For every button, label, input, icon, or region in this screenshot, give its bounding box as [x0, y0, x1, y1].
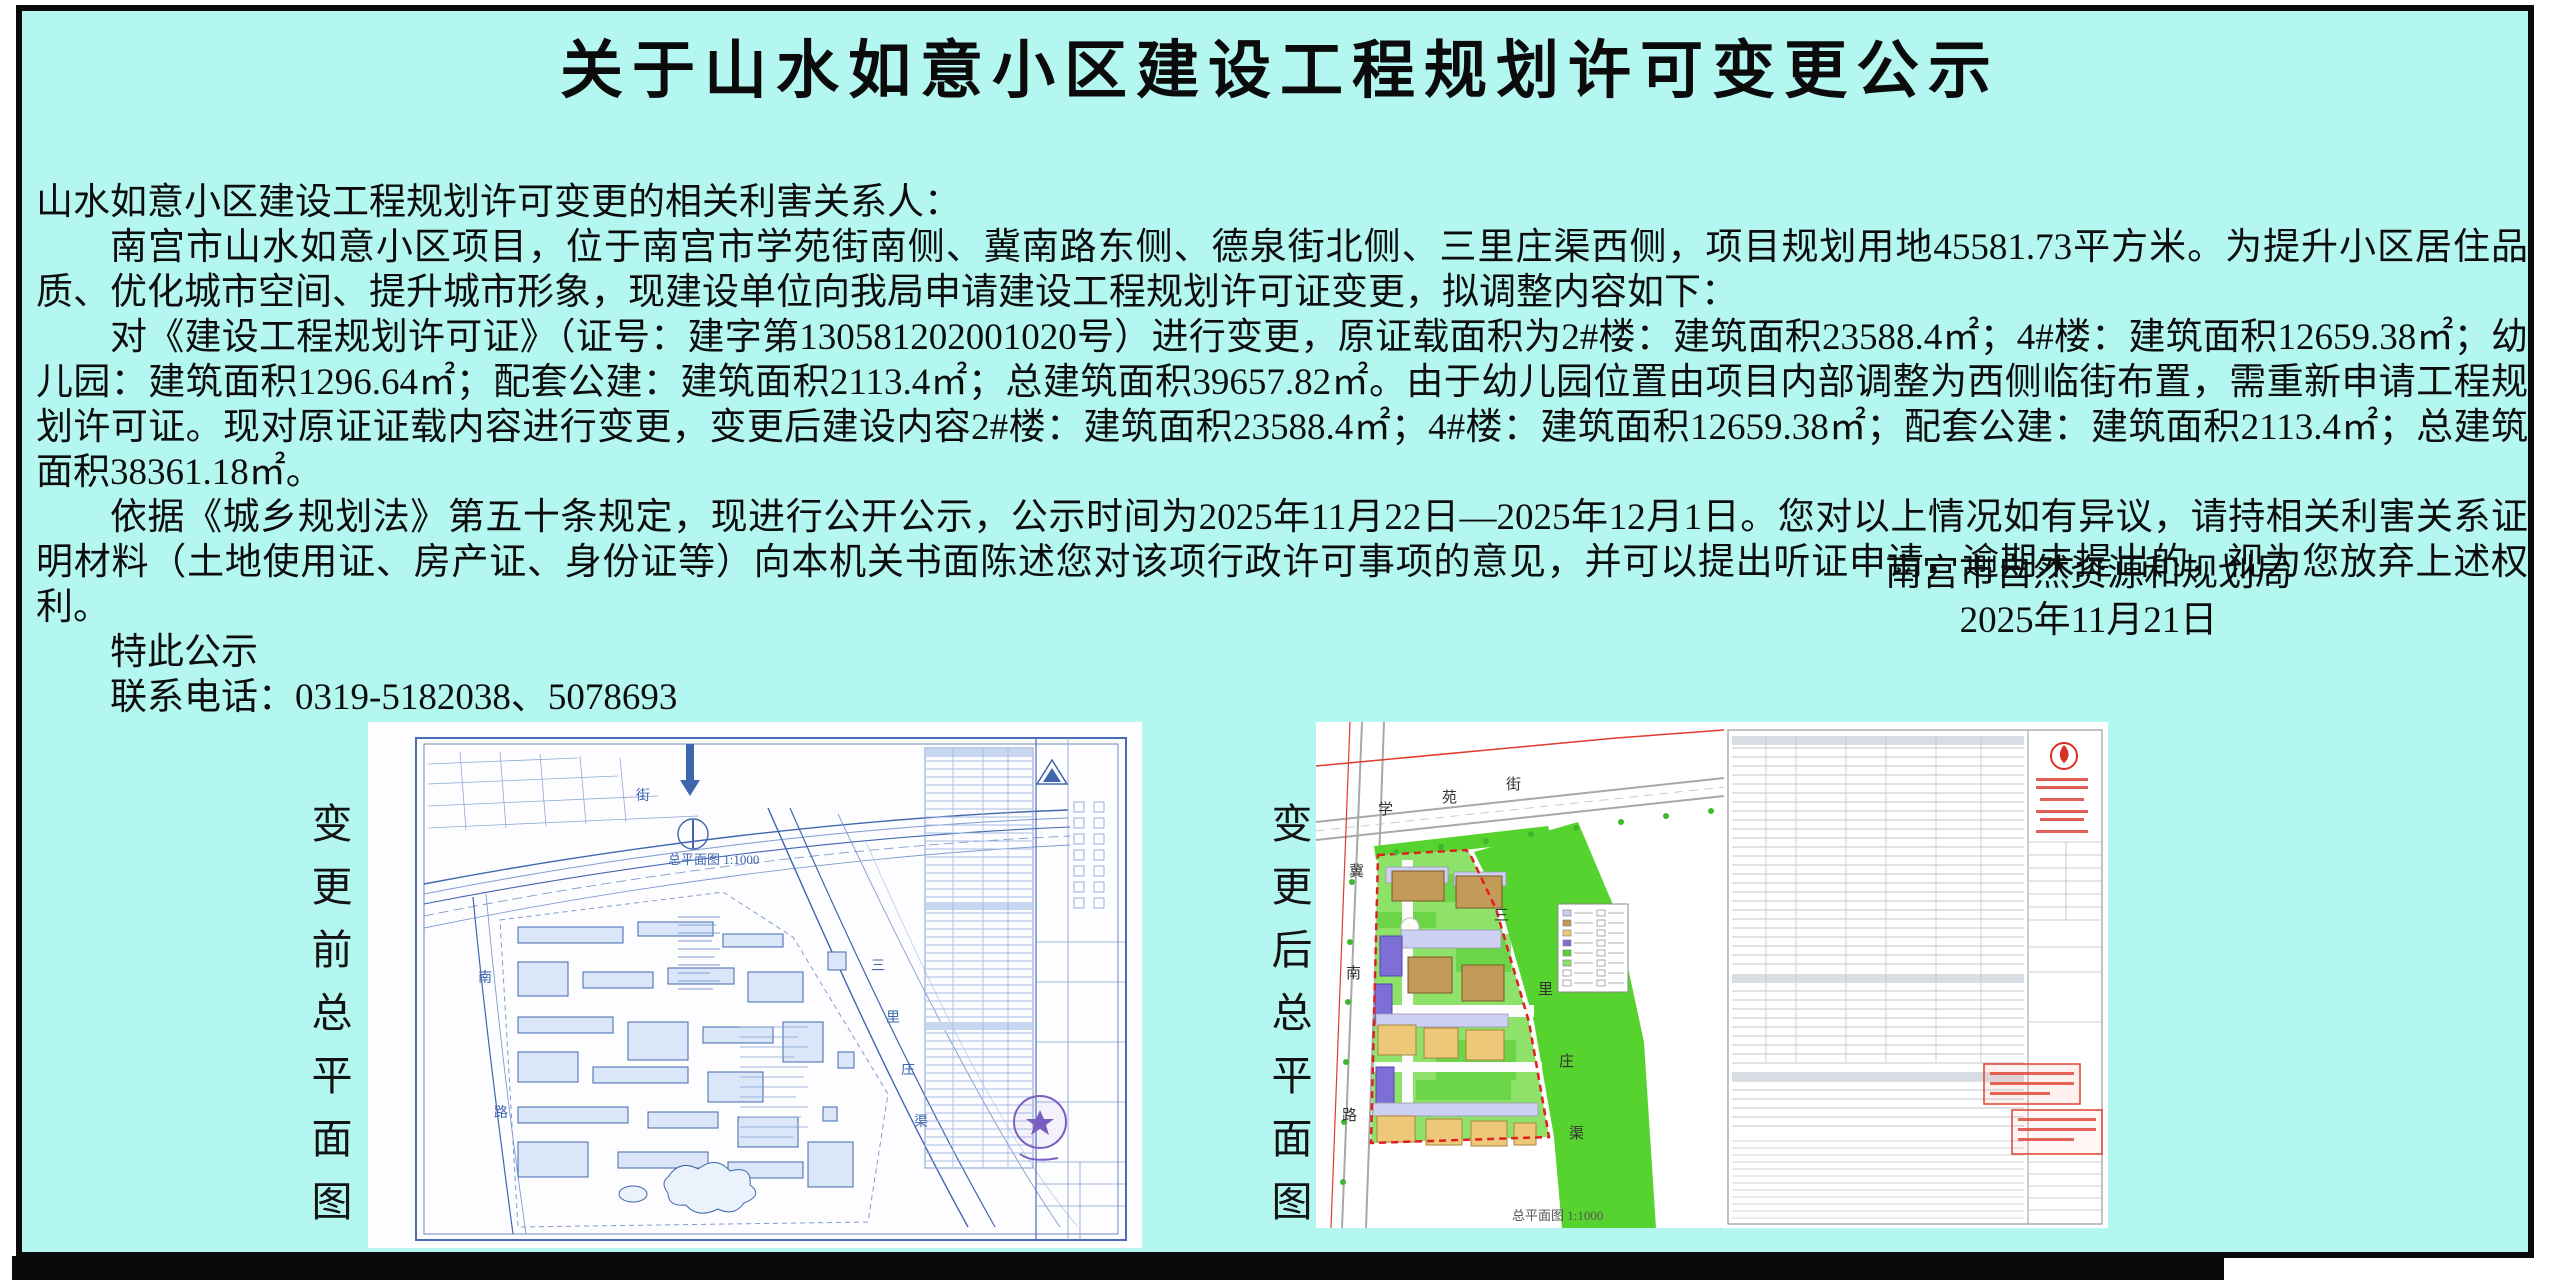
paragraph-project: 南宫市山水如意小区项目，位于南宫市学苑街南侧、冀南路东侧、德泉街北侧、三里庄渠西… — [36, 225, 2528, 315]
signature-block: 南宫市自然资源和规划局 2025年11月21日 — [1885, 550, 2292, 644]
contact-line: 联系电话：0319-5182038、5078693 — [36, 675, 2528, 720]
svg-text:渠: 渠 — [914, 1114, 928, 1130]
site-plan-after-image: 学 苑 街 冀 南 路 三 里 庄 渠 总平面图 1:1000 — [1316, 722, 2108, 1228]
svg-text:学: 学 — [1378, 801, 1393, 818]
blueprint-drawing: 街 南 路 三 里 庄 渠 总平面图 1:1000 — [368, 722, 1142, 1248]
svg-text:南: 南 — [478, 970, 492, 986]
scale-label: 总平面图 1:1000 — [1512, 1208, 1603, 1223]
svg-text:路: 路 — [494, 1105, 508, 1121]
legend-box — [1558, 904, 1628, 992]
issue-date: 2025年11月21日 — [1885, 597, 2292, 644]
svg-text:街: 街 — [636, 788, 650, 804]
svg-text:里: 里 — [886, 1011, 900, 1026]
svg-text:渠: 渠 — [1569, 1125, 1584, 1142]
svg-text:路: 路 — [1342, 1107, 1357, 1124]
site-plan-before-image: 街 南 路 三 里 庄 渠 总平面图 1:1000 — [368, 722, 1142, 1248]
paragraph-permit-change: 对《建设工程规划许可证》（证号：建字第130581202001020号）进行变更… — [36, 315, 2528, 495]
salutation: 山水如意小区建设工程规划许可变更的相关利害关系人： — [36, 180, 2528, 225]
data-table — [925, 748, 1033, 1168]
svg-text:庄: 庄 — [901, 1061, 915, 1078]
svg-text:庄: 庄 — [1559, 1052, 1574, 1070]
bottom-frame-bar — [12, 1256, 2224, 1280]
data-sheet — [1728, 730, 2102, 1224]
svg-text:三: 三 — [1494, 908, 1509, 924]
caption-before-plan: 变更前总平面图 — [298, 802, 358, 1243]
svg-text:南: 南 — [1346, 965, 1361, 982]
svg-text:三: 三 — [871, 959, 885, 974]
page-title: 关于山水如意小区建设工程规划许可变更公示 — [0, 20, 2560, 111]
scale-label: 总平面图 1:1000 — [668, 852, 759, 867]
svg-text:苑: 苑 — [1442, 789, 1457, 806]
caption-after-plan: 变更后总平面图 — [1258, 802, 1318, 1243]
svg-text:冀: 冀 — [1349, 863, 1364, 880]
colored-plan-drawing: 学 苑 街 冀 南 路 三 里 庄 渠 总平面图 1:1000 — [1316, 722, 2108, 1228]
issuer-name: 南宫市自然资源和规划局 — [1885, 550, 2292, 597]
svg-text:里: 里 — [1538, 981, 1553, 998]
svg-text:街: 街 — [1506, 776, 1521, 793]
